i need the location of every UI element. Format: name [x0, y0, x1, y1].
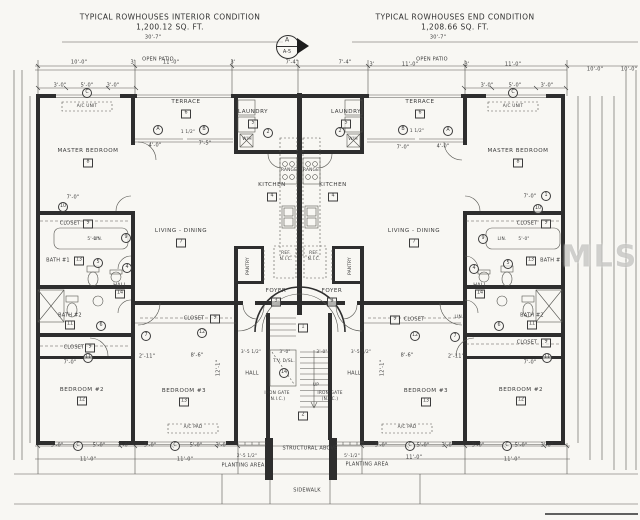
plan-label: 5'-0"	[190, 444, 203, 449]
window-door-tag: C	[508, 88, 518, 98]
plan-label: 12'-1"	[217, 360, 222, 376]
plan-label: BEDROOM #2	[499, 388, 543, 394]
title-end-condition: TYPICAL ROWHOUSES END CONDITION	[376, 13, 535, 22]
window-door-tag: C	[82, 88, 92, 98]
plan-label: UP	[313, 384, 319, 388]
plan-label: W/H	[242, 138, 252, 142]
room-finish-tag: 9	[541, 339, 551, 348]
plan-label: 5'-0"	[518, 238, 529, 242]
plan-label: 7'-0"	[397, 146, 410, 151]
plan-label: PANTRY	[349, 257, 353, 275]
plan-label: 1 1/2"	[181, 131, 195, 135]
plan-label: 3'-0"	[216, 444, 229, 449]
plan-label: RANGE	[281, 169, 297, 173]
plan-label: TERRACE	[171, 100, 200, 106]
window-door-tag: 7	[450, 332, 460, 342]
mls-watermark: MLS	[562, 240, 639, 275]
plan-label: PANTRY	[247, 257, 251, 275]
plan-label: 3'-0"	[472, 444, 485, 449]
room-finish-tag: 3	[327, 298, 337, 307]
room-finish-tag: 14	[475, 290, 485, 299]
detail-marker-letter: A	[285, 37, 289, 44]
window-door-tag: 7	[141, 331, 151, 341]
window-door-tag: C	[170, 441, 180, 451]
plan-label: 4'-0"	[437, 145, 450, 150]
plan-label: PLANTING AREA	[222, 464, 265, 469]
room-finish-tag: 9	[541, 220, 551, 229]
plan-label: 2'-5 1/2"	[237, 455, 257, 459]
room-finish-tag: 9	[210, 315, 220, 324]
plan-label: 3'	[465, 63, 470, 68]
plan-label: SIDEWALK	[293, 489, 320, 494]
window-door-tag: C	[502, 441, 512, 451]
window-door-tag: 5	[503, 259, 513, 269]
room-finish-tag: 9	[85, 344, 95, 353]
plan-label: CLOSET	[404, 318, 425, 323]
plan-label: A/C UNIT	[77, 105, 98, 109]
room-finish-tag: 9	[83, 220, 93, 229]
detail-marker-arrow-icon	[297, 38, 309, 54]
plan-label: 3'-0"	[51, 444, 64, 449]
window-door-tag: 6	[494, 321, 504, 331]
room-finish-tag: 1	[298, 324, 308, 333]
plan-label: CLOSET	[64, 346, 85, 351]
plan-label: 3'-5 1/2"	[351, 351, 371, 355]
window-door-tag: 12	[197, 328, 207, 338]
plan-label: IRON GATE	[317, 392, 342, 396]
window-door-tag: B	[199, 125, 209, 135]
plan-label: LIN.	[454, 316, 463, 320]
window-door-tag: C	[405, 441, 415, 451]
plan-label: 3'-0"	[118, 444, 131, 449]
plan-label: 8'-6"	[401, 354, 414, 359]
plan-label: HALL	[245, 372, 259, 377]
window-door-tag: A	[153, 125, 163, 135]
section-detail-marker: A A-5	[276, 35, 310, 58]
room-finish-tag: 12	[77, 397, 87, 406]
plan-label: HALL	[347, 372, 361, 377]
plan-label: FOYER	[266, 289, 287, 295]
plan-label: 3'	[131, 61, 136, 66]
room-finish-tag: 14	[115, 290, 125, 299]
plan-label: 4'-0"	[149, 144, 162, 149]
plan-label: 30'-7"	[430, 36, 446, 41]
plan-label: 7'-0"	[524, 195, 537, 200]
detail-marker-sheet: A-5	[283, 49, 291, 55]
window-door-tag: A	[443, 126, 453, 136]
plan-label: 10'-0"	[587, 68, 603, 73]
room-finish-tag: 3	[271, 298, 281, 307]
plan-label: REF.	[309, 252, 319, 256]
window-door-tag: 14	[279, 368, 289, 378]
room-finish-tag: 5	[248, 120, 258, 129]
detail-marker-divider	[277, 46, 298, 47]
plan-label: A/C UNIT	[503, 105, 524, 109]
plan-label: PLANTING AREA	[346, 463, 389, 468]
window-door-tag: 6	[96, 321, 106, 331]
window-door-tag: 11	[542, 353, 552, 363]
plan-label: CLOSET	[517, 341, 538, 346]
room-finish-tag: 4	[328, 193, 338, 202]
plan-label: CLOSET	[184, 317, 205, 322]
room-finish-tag: 9	[390, 316, 400, 325]
plan-label: KITCHEN	[319, 183, 347, 189]
window-door-tag: 10	[58, 202, 68, 212]
plan-label: CLOSET	[517, 222, 538, 227]
plan-label: 5'-0"	[515, 444, 528, 449]
plan-label: 10'-0"	[71, 61, 87, 66]
plan-label: BEDROOM #3	[404, 389, 448, 395]
plan-label: HALL	[113, 284, 127, 289]
room-finish-tag: 8	[83, 159, 93, 168]
room-finish-tag: 13	[421, 398, 431, 407]
plan-label: LIVING - DINING	[388, 229, 440, 235]
plan-label: N.I.C.	[308, 258, 321, 262]
plan-label: BATH #1	[540, 259, 564, 264]
plan-label: 11'-0"	[402, 63, 418, 68]
plan-label: BEDROOM #2	[60, 388, 104, 394]
window-door-tag: 4	[122, 263, 132, 273]
plan-label: 5'-0"	[417, 444, 430, 449]
plan-label: 5'-0"	[93, 444, 106, 449]
plan-label: 2'-11"	[139, 355, 155, 360]
plan-label: MASTER BEDROOM	[487, 149, 548, 155]
window-door-tag: 5	[93, 258, 103, 268]
room-finish-tag: 4	[267, 193, 277, 202]
title-end-area: 1,208.66 SQ. FT.	[421, 23, 489, 32]
room-finish-tag: 13	[74, 257, 84, 266]
plan-label: 11'-0"	[406, 456, 422, 461]
plan-label: 7'-0"	[64, 361, 77, 366]
plan-label: LAUNDRY	[331, 110, 361, 116]
plan-label: 1 1/2"	[410, 130, 424, 134]
room-finish-tag: 7	[409, 239, 419, 248]
plan-label: 3'-0"	[144, 444, 157, 449]
plan-label: N.I.C.	[280, 258, 293, 262]
plan-label: 3'-0"	[107, 84, 120, 89]
room-finish-tag: 13	[526, 257, 536, 266]
plan-label: BEDROOM #3	[162, 389, 206, 395]
room-finish-tag: 8	[513, 159, 523, 168]
plan-label: FOYER	[322, 289, 343, 295]
plan-label: IRON GATE	[264, 392, 289, 396]
plan-label: A/C PAD	[184, 426, 203, 430]
plan-label: 5'-1/2"	[344, 455, 360, 459]
window-door-tag: B	[398, 125, 408, 135]
plan-label: 5'-0"	[87, 238, 98, 242]
plan-label: 7'-0"	[524, 361, 537, 366]
plan-label: 3'-0"	[316, 351, 327, 355]
window-door-tag: 10	[533, 204, 543, 214]
plan-label: 3'-0"	[541, 84, 554, 89]
plan-label: 3'-0"	[279, 351, 290, 355]
plan-label: 3'-0"	[54, 84, 67, 89]
plan-label: (N.I.C.)	[322, 398, 339, 402]
room-finish-tag: 2	[298, 412, 308, 421]
window-door-tag: 4	[469, 264, 479, 274]
plan-label: 11'-0"	[504, 458, 520, 463]
room-finish-tag: 7	[176, 239, 186, 248]
plan-label: 2'-11"	[448, 355, 464, 360]
room-finish-tag: 13	[179, 398, 189, 407]
plan-label: 7'-4"	[339, 61, 352, 66]
plan-label: BATH #1	[46, 259, 70, 264]
window-door-tag: 2	[263, 128, 273, 138]
plan-label: 10'-0"	[621, 68, 637, 73]
room-finish-tag: 6	[415, 110, 425, 119]
window-door-tag: 1	[541, 191, 551, 201]
window-door-tag: 12	[410, 331, 420, 341]
plan-label: 3'-5 1/2"	[241, 351, 261, 355]
plan-label: BATH #2	[520, 314, 544, 319]
plan-label: RANGE	[303, 169, 319, 173]
plan-label: KITCHEN	[258, 183, 286, 189]
plan-label: A/C PAD	[398, 426, 417, 430]
plan-label: 7'-0"	[67, 196, 80, 201]
plan-label: 3'	[370, 63, 375, 68]
plan-label: CLOSET	[60, 222, 81, 227]
plan-label: 7'-5"	[199, 142, 212, 147]
plan-label: 3'-0"	[375, 444, 388, 449]
plan-label: 30'-7"	[145, 36, 161, 41]
plan-label: LIVING - DINING	[155, 229, 207, 235]
room-finish-tag: 11	[527, 321, 537, 330]
plan-label: 3'-0"	[442, 444, 455, 449]
window-door-tag: 11	[83, 353, 93, 363]
window-door-tag: C	[73, 441, 83, 451]
plan-label: TERRACE	[405, 100, 434, 106]
title-interior-area: 1,200.12 SQ. FT.	[136, 23, 204, 32]
plan-label: 7'-4"	[286, 61, 299, 66]
plan-label: STRUCTURAL ABOVE	[282, 447, 337, 452]
room-finish-tag: 12	[516, 397, 526, 406]
plan-label: MASTER BEDROOM	[57, 149, 118, 155]
plan-label: (N.I.C.)	[269, 398, 286, 402]
blueprint-scan: TYPICAL ROWHOUSES INTERIOR CONDITION 1,2…	[0, 0, 640, 520]
plan-label: 12'-1"	[381, 360, 386, 376]
room-finish-tag: 11	[65, 321, 75, 330]
plan-label: 3'-0"	[541, 444, 554, 449]
plan-label: T.V. D/SL.	[273, 360, 295, 364]
plan-label: OPEN PATIO	[416, 58, 448, 63]
plan-label: 11'-0"	[80, 458, 96, 463]
plan-label: HALL	[473, 284, 487, 289]
title-interior-condition: TYPICAL ROWHOUSES INTERIOR CONDITION	[80, 13, 261, 22]
plan-label: REF.	[281, 252, 291, 256]
window-door-tag: 9	[121, 233, 131, 243]
plan-label: 3'-0"	[481, 84, 494, 89]
window-door-tag: 9	[478, 234, 488, 244]
plan-label: BATH #2	[58, 314, 82, 319]
plan-label: 3'	[231, 61, 236, 66]
plan-label: LAUNDRY	[238, 110, 268, 116]
window-door-tag: 2	[335, 127, 345, 137]
plan-label: 11'-0"	[177, 458, 193, 463]
room-finish-tag: 6	[181, 110, 191, 119]
plan-label: 11'-0"	[163, 61, 179, 66]
plan-label: W/H	[348, 138, 358, 142]
plan-label: 8'-6"	[191, 354, 204, 359]
plan-label: 11'-0"	[505, 63, 521, 68]
plan-label: LIN.	[497, 238, 506, 242]
